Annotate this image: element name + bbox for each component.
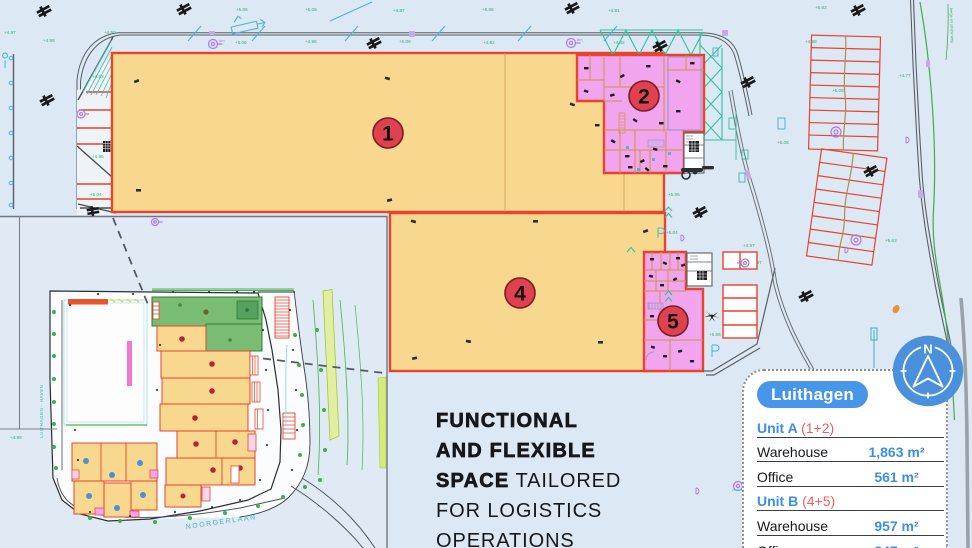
svg-text:+5.08: +5.08 [832,88,844,93]
svg-text:+4.93: +4.93 [92,74,104,79]
svg-text:+5.06: +5.06 [235,40,247,45]
svg-text:+4.95: +4.95 [92,154,104,159]
svg-text:+4.97: +4.97 [743,243,755,248]
svg-text:+4.90: +4.90 [104,30,116,35]
svg-text:+5.06: +5.06 [399,39,411,44]
svg-text:bm: bm [219,38,225,43]
svg-text:+4.97: +4.97 [4,30,16,35]
svg-text:+4.81: +4.81 [608,8,620,13]
svg-text:+5.63: +5.63 [885,238,897,243]
svg-text:+4.99: +4.99 [10,435,22,440]
svg-text:+5.06: +5.06 [777,140,789,145]
svg-text:+4.92: +4.92 [483,40,495,45]
svg-text:+4.77: +4.77 [899,73,911,78]
svg-text:+5.06: +5.06 [305,7,317,12]
svg-text:+4.87: +4.87 [393,8,405,13]
svg-text:+5.04: +5.04 [666,230,678,235]
svg-text:2: 2 [638,86,650,109]
svg-text:N: N [923,342,932,357]
svg-text:LUITHAGEN - HAVEN: LUITHAGEN - HAVEN [39,385,44,438]
svg-text:bm: bm [577,37,583,42]
svg-text:5: 5 [667,311,679,334]
svg-text:+5.62: +5.62 [815,5,827,10]
svg-text:+5.06: +5.06 [709,332,721,337]
svg-text:+5.04: +5.04 [90,192,102,197]
svg-text:1: 1 [382,123,394,146]
svg-text:+5.06: +5.06 [668,192,680,197]
svg-text:+4.96: +4.96 [305,39,317,44]
svg-text:+5.06: +5.06 [482,7,494,12]
svg-text:4: 4 [514,283,526,306]
svg-text:+5.06: +5.06 [236,7,248,12]
svg-text:+4.98: +4.98 [43,38,55,43]
